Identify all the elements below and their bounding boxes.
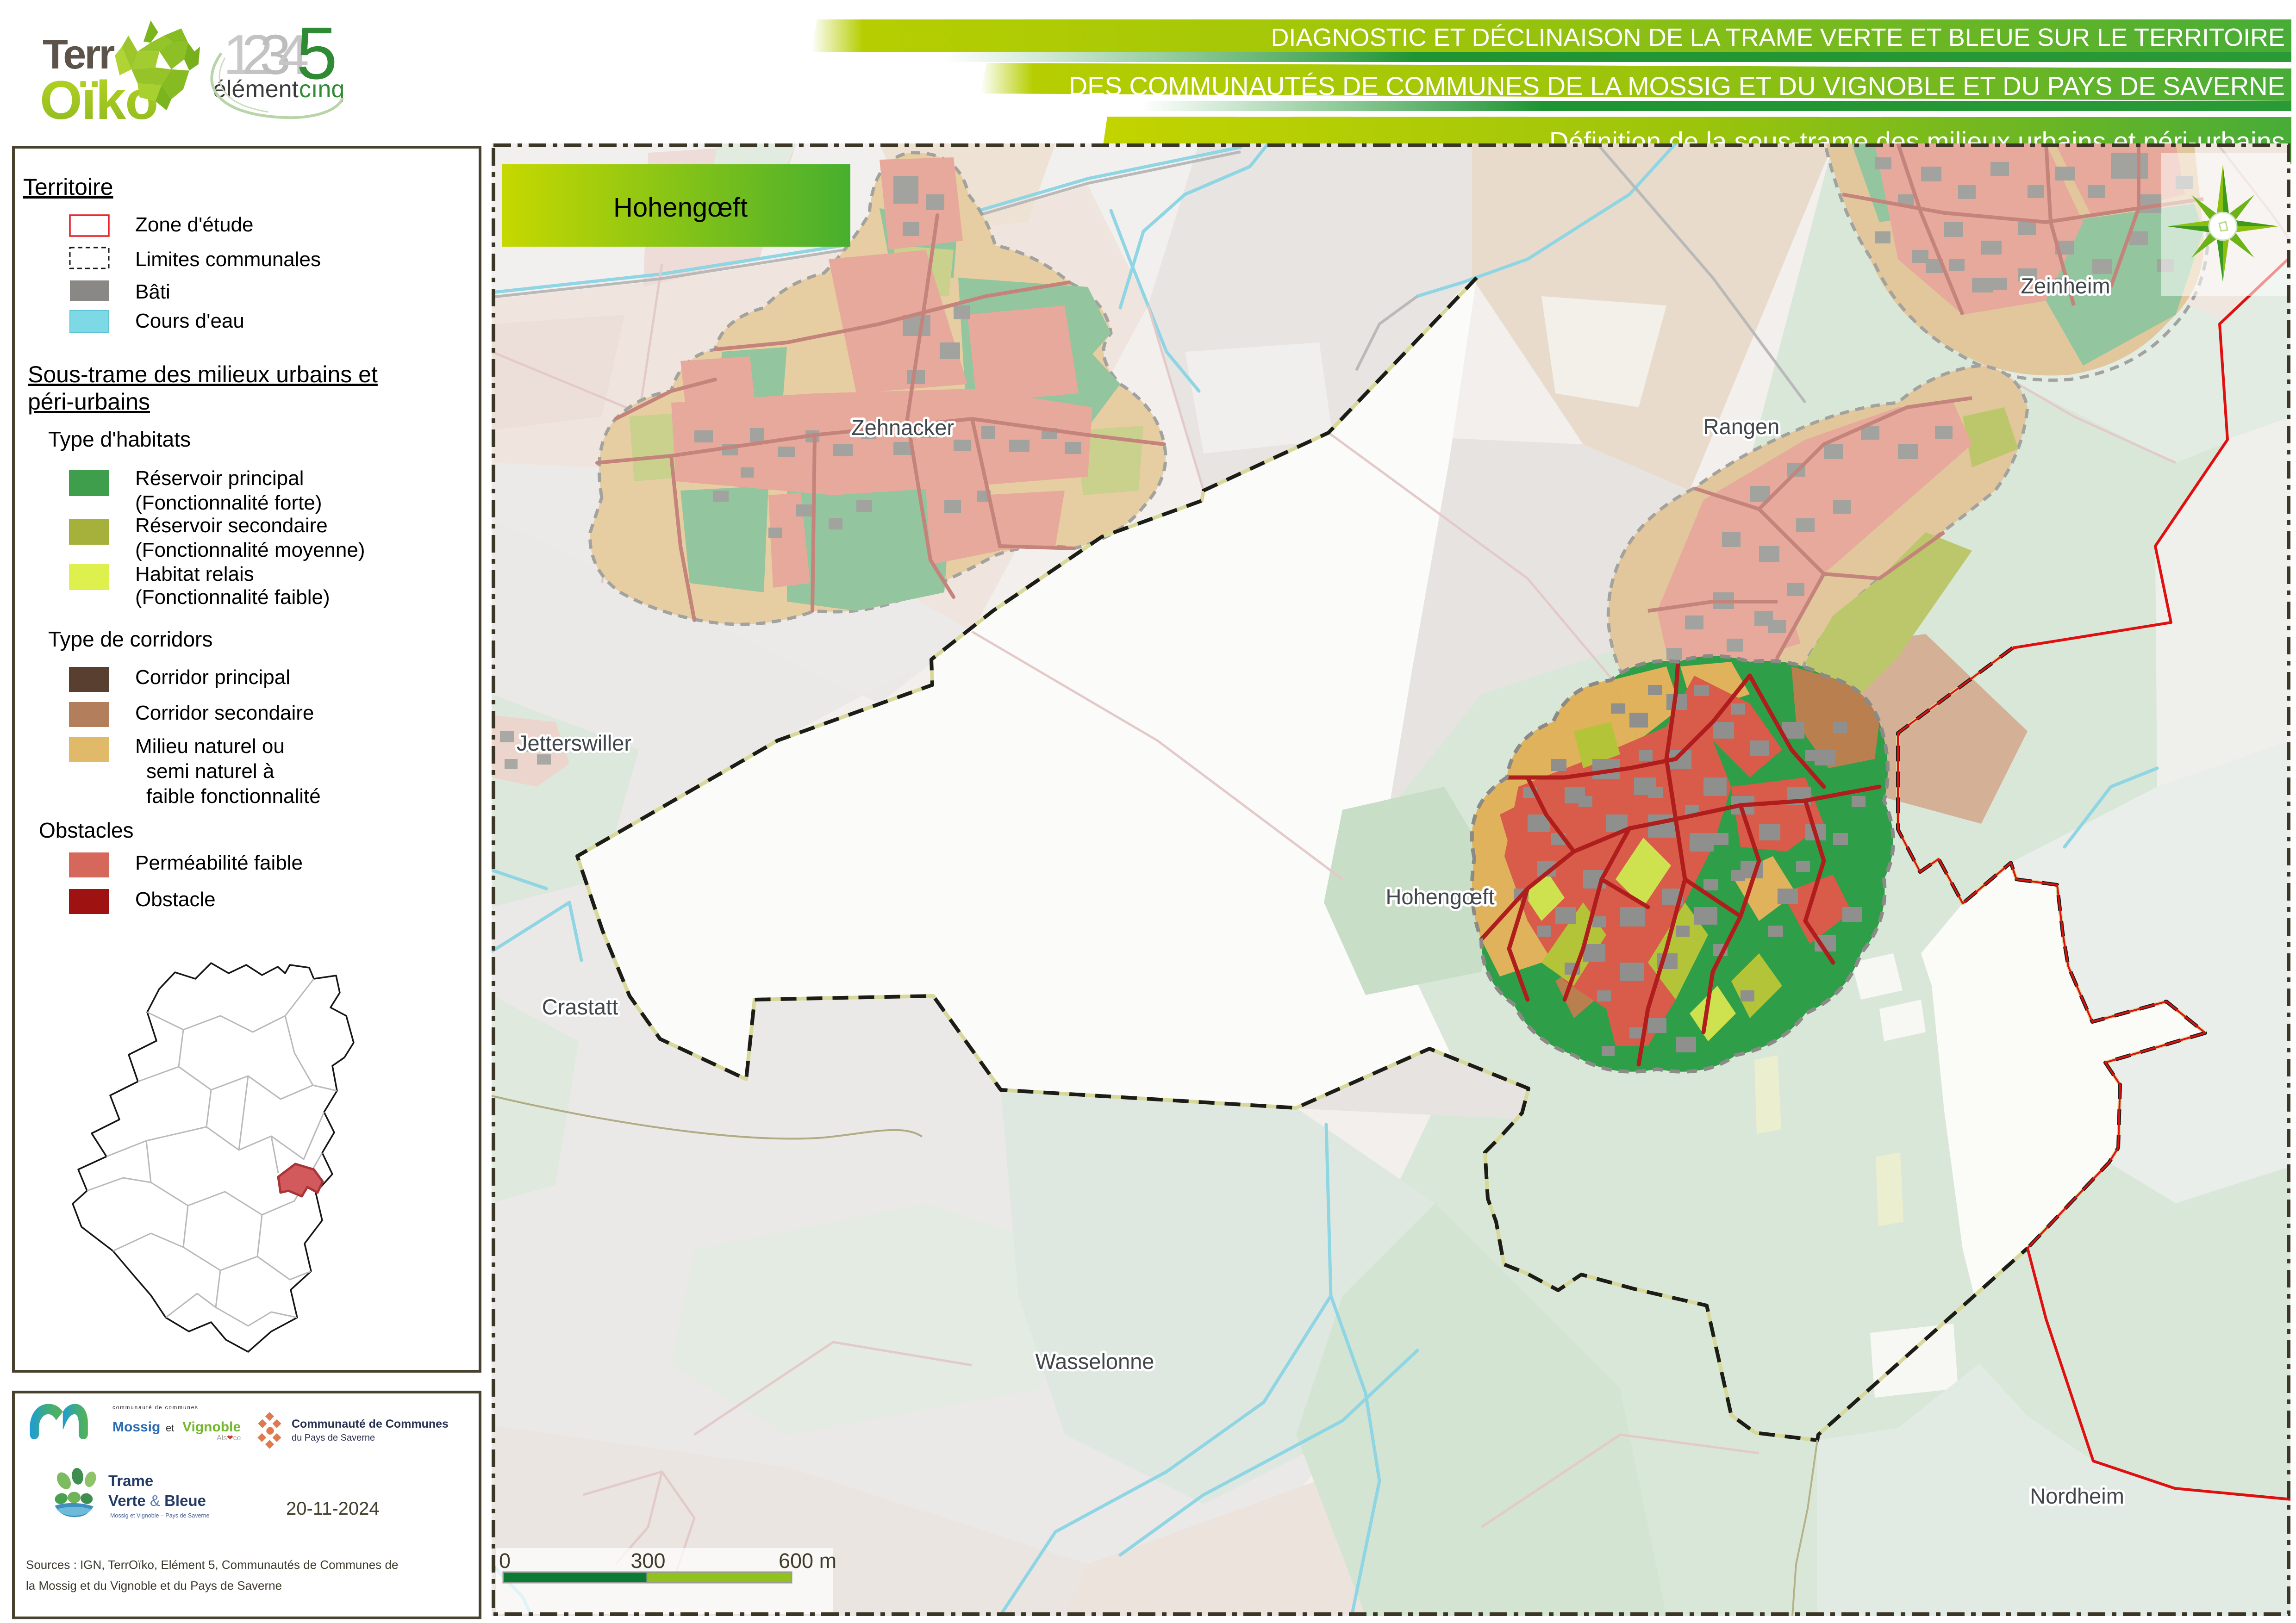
svg-text:300: 300 [630,1549,665,1573]
svg-text:Obstacles: Obstacles [39,818,134,842]
svg-text:600 m: 600 m [779,1549,836,1573]
svg-text:0: 0 [499,1549,511,1573]
svg-text:Vignoble: Vignoble [182,1419,241,1435]
svg-text:DIAGNOSTIC ET DÉCLINAISON DE L: DIAGNOSTIC ET DÉCLINAISON DE LA TRAME VE… [1271,24,2285,51]
svg-text:(Fonctionnalité forte): (Fonctionnalité forte) [135,491,322,514]
svg-text:cınq: cınq [299,76,344,103]
svg-text:Mossig: Mossig [112,1419,160,1435]
svg-text:Bâti: Bâti [135,280,170,303]
svg-text:Habitat relais: Habitat relais [135,563,254,585]
svg-text:Sources : IGN, TerrOïko, Eléme: Sources : IGN, TerrOïko, Elément 5, Comm… [26,1558,398,1572]
svg-text:DES COMMUNAUTÉS DE COMMUNES DE: DES COMMUNAUTÉS DE COMMUNES DE LA MOSSIG… [1069,71,2285,100]
svg-text:Corridor principal: Corridor principal [135,666,290,689]
svg-text:Milieu naturel ou: Milieu naturel ou [135,735,285,758]
svg-text:Trame: Trame [108,1472,153,1489]
svg-text:Crastatt: Crastatt [542,995,618,1019]
svg-text:Mossig et Vignoble – Pays de S: Mossig et Vignoble – Pays de Saverne [110,1512,210,1519]
svg-text:Hohengœft: Hohengœft [613,193,748,223]
svg-text:Réservoir secondaire: Réservoir secondaire [135,514,328,537]
svg-text:Communauté de Communes: Communauté de Communes [292,1418,449,1430]
svg-text:Obstacle: Obstacle [135,888,216,911]
svg-text:semi naturel à: semi naturel à [146,760,275,783]
svg-text:Type d'habitats: Type d'habitats [48,427,191,451]
svg-text:Zehnacker: Zehnacker [851,415,954,440]
svg-text:20-11-2024: 20-11-2024 [286,1499,380,1519]
svg-text:du Pays de Saverne: du Pays de Saverne [292,1433,375,1443]
svg-text:Territoire: Territoire [23,174,113,200]
svg-text:Wasselonne: Wasselonne [1036,1349,1154,1374]
svg-text:Zone d'étude: Zone d'étude [135,213,254,236]
svg-text:(Fonctionnalité faible): (Fonctionnalité faible) [135,586,330,609]
svg-text:Jetterswiller: Jetterswiller [517,731,631,755]
svg-text:Als❤ce: Als❤ce [217,1434,241,1442]
svg-text:communauté de communes: communauté de communes [112,1405,199,1411]
svg-text:faible fonctionnalité: faible fonctionnalité [146,785,321,808]
svg-text:Perméabilité faible: Perméabilité faible [135,852,303,874]
svg-text:Verte & Bleue: Verte & Bleue [108,1492,206,1509]
svg-text:péri-urbains: péri-urbains [28,389,150,415]
svg-text:Corridor secondaire: Corridor secondaire [135,702,314,724]
svg-text:Cours d'eau: Cours d'eau [135,310,244,332]
svg-text:Limites communales: Limites communales [135,248,321,271]
svg-text:Sous-trame des milieux urbains: Sous-trame des milieux urbains et [28,361,378,387]
svg-text:Rangen: Rangen [1703,414,1780,439]
svg-text:et: et [166,1422,174,1434]
svg-text:Réservoir principal: Réservoir principal [135,467,304,490]
svg-text:élément: élément [213,76,299,103]
svg-text:Zeinheim: Zeinheim [2021,274,2110,298]
svg-text:la Mossig et du Vignoble et du: la Mossig et du Vignoble et du Pays de S… [26,1579,282,1592]
svg-text:Type de corridors: Type de corridors [48,627,212,651]
svg-text:Nordheim: Nordheim [2030,1484,2124,1508]
svg-text:(Fonctionnalité moyenne): (Fonctionnalité moyenne) [135,539,365,561]
svg-text:Hohengœft: Hohengœft [1385,884,1494,909]
